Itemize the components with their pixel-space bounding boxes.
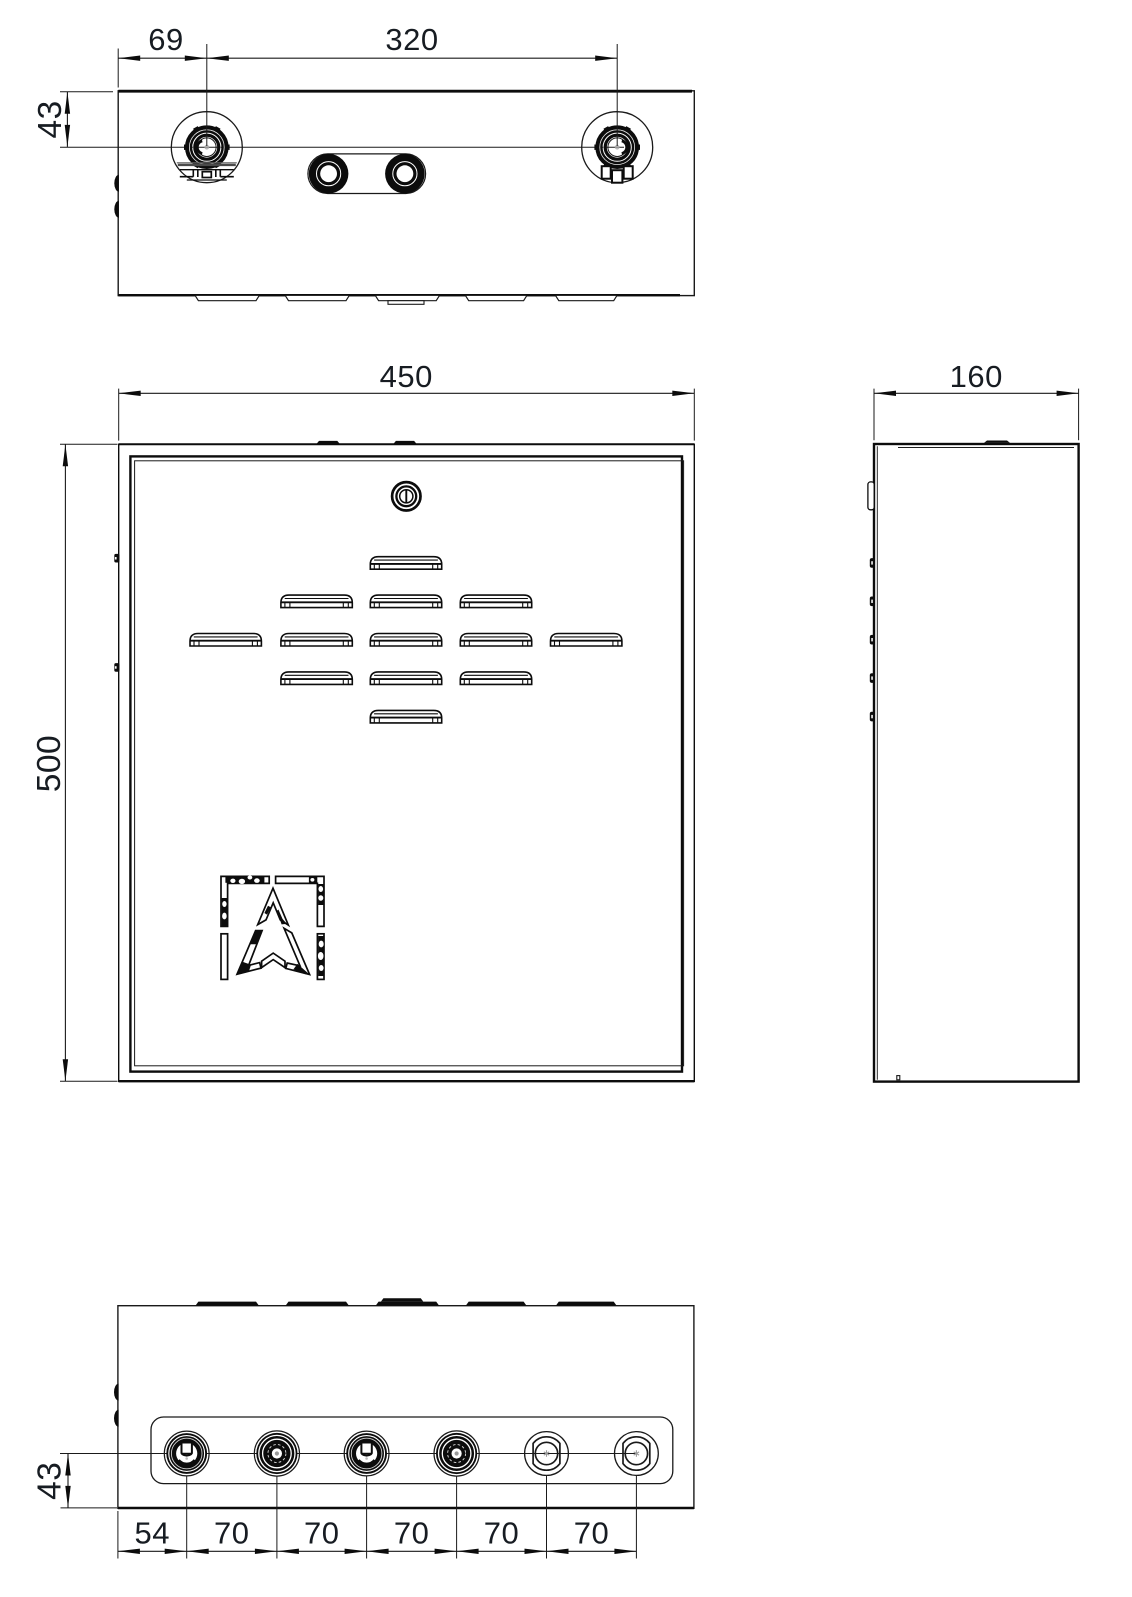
- svg-text:450: 450: [380, 359, 433, 394]
- svg-text:500: 500: [31, 735, 68, 792]
- svg-text:320: 320: [385, 22, 438, 57]
- svg-text:70: 70: [484, 1516, 519, 1551]
- svg-text:70: 70: [574, 1516, 609, 1551]
- svg-text:70: 70: [214, 1516, 249, 1551]
- svg-text:54: 54: [135, 1516, 170, 1551]
- svg-text:160: 160: [950, 359, 1003, 394]
- svg-text:69: 69: [148, 22, 183, 57]
- svg-text:70: 70: [394, 1516, 429, 1551]
- svg-text:70: 70: [304, 1516, 339, 1551]
- svg-text:43: 43: [32, 100, 69, 138]
- svg-text:43: 43: [32, 1462, 69, 1500]
